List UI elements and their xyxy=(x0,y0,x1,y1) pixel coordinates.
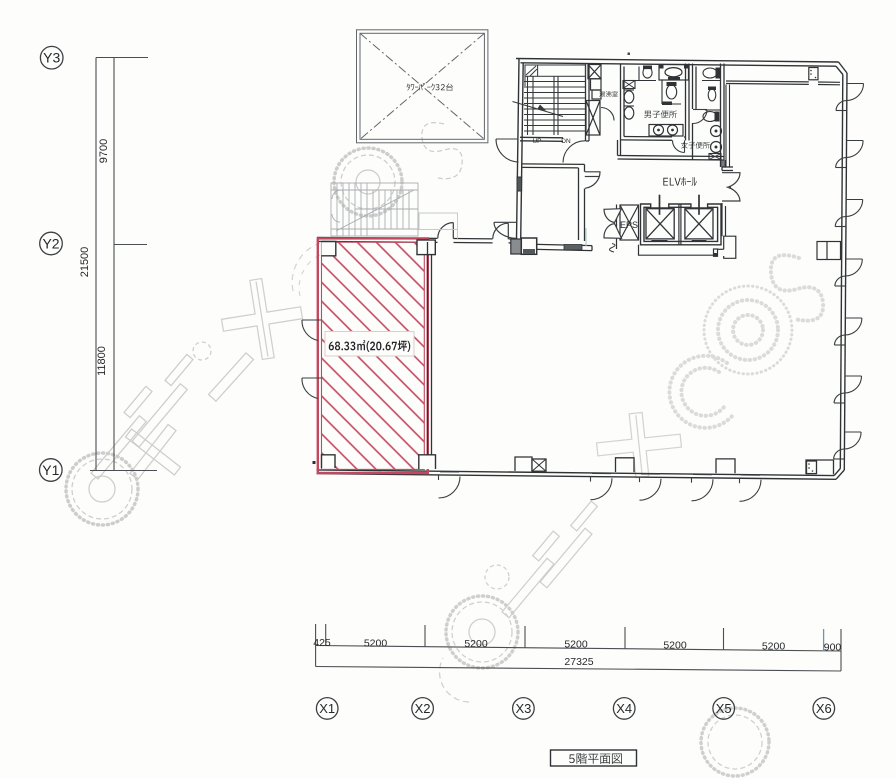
svg-text:5200: 5200 xyxy=(762,641,786,653)
svg-text:5200: 5200 xyxy=(364,638,388,650)
svg-text:X2: X2 xyxy=(415,701,431,716)
svg-text:X3: X3 xyxy=(515,701,531,716)
svg-text:9700: 9700 xyxy=(98,139,110,163)
svg-text:11800: 11800 xyxy=(96,346,108,376)
svg-text:21500: 21500 xyxy=(79,247,91,278)
svg-text:X1: X1 xyxy=(319,701,335,716)
svg-text:EPS: EPS xyxy=(620,220,638,230)
svg-text:27325: 27325 xyxy=(564,656,593,668)
svg-text:Y3: Y3 xyxy=(43,50,60,66)
svg-text:5200: 5200 xyxy=(663,640,687,652)
svg-text:X6: X6 xyxy=(816,701,832,716)
svg-text:Y1: Y1 xyxy=(42,462,59,478)
svg-text:900: 900 xyxy=(824,642,842,654)
svg-text:X4: X4 xyxy=(616,701,632,716)
svg-text:DN: DN xyxy=(561,138,571,145)
svg-text:425: 425 xyxy=(313,637,331,649)
svg-text:X5: X5 xyxy=(716,701,732,716)
svg-text:5200: 5200 xyxy=(564,639,588,651)
svg-text:5200: 5200 xyxy=(464,638,488,650)
svg-text:UP: UP xyxy=(532,138,541,145)
svg-text:Y2: Y2 xyxy=(42,235,59,251)
